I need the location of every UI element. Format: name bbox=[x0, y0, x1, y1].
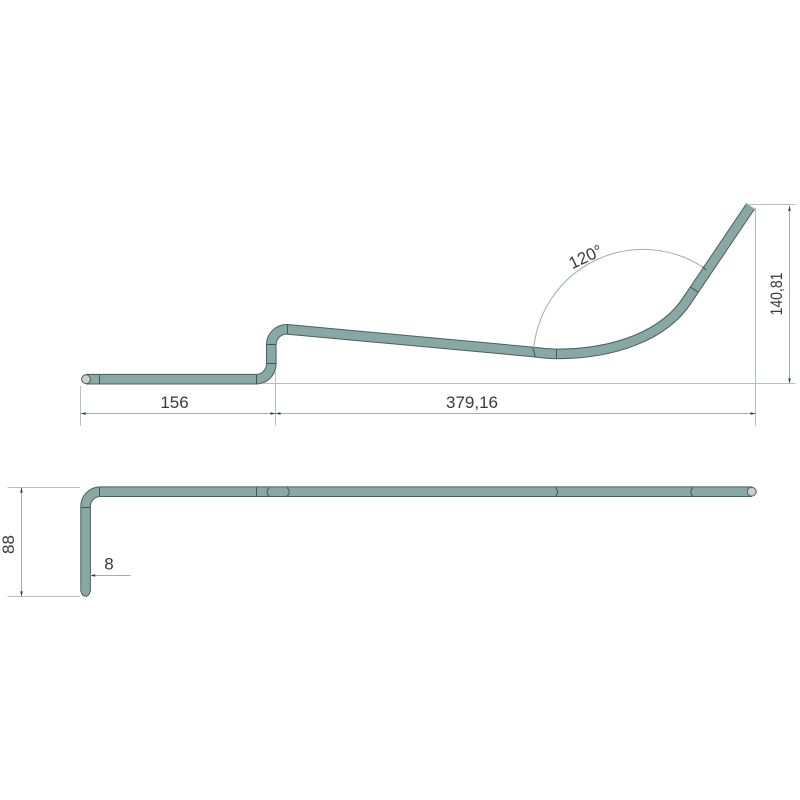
svg-text:156: 156 bbox=[160, 393, 188, 412]
svg-text:140,81: 140,81 bbox=[767, 273, 786, 316]
svg-text:8: 8 bbox=[104, 555, 113, 574]
svg-text:88: 88 bbox=[0, 535, 18, 554]
svg-text:379,16: 379,16 bbox=[446, 393, 498, 412]
